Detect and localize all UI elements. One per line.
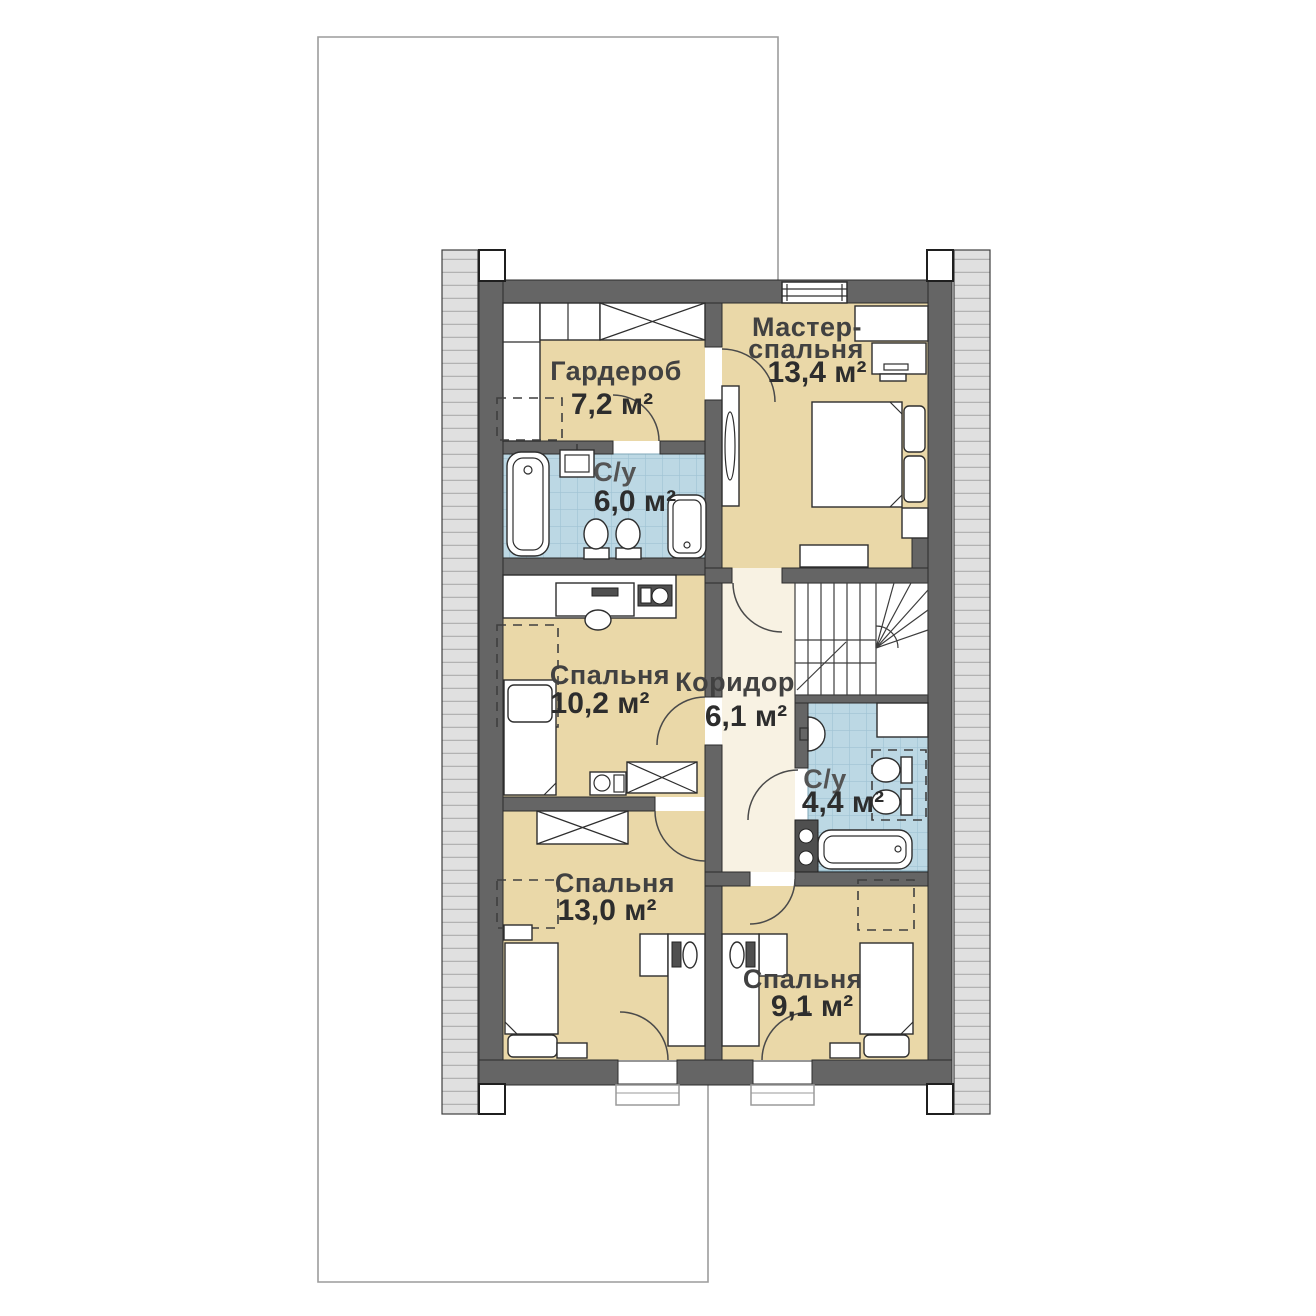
nightstand (557, 1043, 587, 1058)
mirror-icon (722, 386, 739, 506)
nightstand (902, 508, 928, 538)
label-bedroom-br-area: 9,1 м² (771, 990, 853, 1023)
roof-band-right (954, 250, 990, 1114)
room-stairs-floor (795, 583, 928, 695)
toilet-icon (616, 519, 641, 559)
tv-stand (800, 545, 868, 567)
window-master-top (782, 282, 847, 303)
single-bed-icon (504, 680, 556, 795)
french-door-right (751, 1061, 814, 1105)
bathtub-icon (507, 452, 549, 556)
label-corridor-area: 6,1 м² (705, 700, 787, 733)
label-bath-top-name: С/у (593, 457, 637, 487)
single-bed-icon (860, 943, 913, 1057)
washer-column-icon (795, 820, 818, 872)
floorplan-canvas: Мастер- спальня 13,4 м² Гардероб 7,2 м² … (0, 0, 1316, 1316)
cabinet (877, 703, 928, 737)
label-wardrobe-name: Гардероб (550, 356, 682, 386)
radiator-unit-icon (590, 772, 626, 795)
label-bedroom-mid-name: Спальня (550, 660, 670, 690)
toilet-icon (872, 757, 912, 783)
label-bath-mid-area: 4,4 м² (802, 786, 884, 819)
wardrobe-x-closet (600, 303, 705, 340)
bathtub-icon (818, 830, 912, 869)
label-bedroom-mid-area: 10,2 м² (551, 687, 650, 720)
closet-x-icon (537, 811, 628, 844)
nightstand (504, 925, 532, 940)
single-bed-icon (505, 943, 558, 1057)
nightstand (830, 1043, 860, 1058)
french-door-left (616, 1061, 679, 1105)
label-master-area: 13,4 м² (768, 356, 867, 389)
label-bedroom-bl-area: 13,0 м² (558, 894, 657, 927)
printer-unit-icon (638, 585, 672, 606)
toilet-icon (584, 519, 609, 559)
closet (855, 306, 928, 341)
roof-band-left (442, 250, 478, 1114)
label-corridor-name: Коридор (675, 667, 795, 697)
label-bath-top-area: 6,0 м² (594, 485, 676, 518)
closet-x-icon (627, 762, 697, 793)
floorplan-drawing: Мастер- спальня 13,4 м² Гардероб 7,2 м² … (0, 0, 1316, 1316)
label-wardrobe-area: 7,2 м² (571, 388, 653, 421)
